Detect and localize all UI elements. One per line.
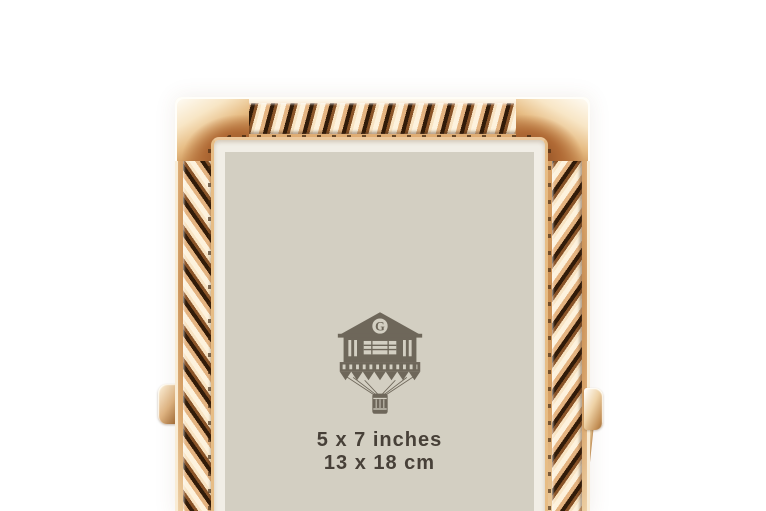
rope-texture-right [552, 109, 582, 511]
size-label-inches: 5 x 7 inches [317, 429, 442, 452]
frame-inner-lip: G [211, 137, 548, 511]
size-label-cm: 13 x 18 cm [317, 452, 442, 475]
insert-card: G [225, 152, 534, 511]
size-caption: 5 x 7 inches 13 x 18 cm [317, 429, 442, 475]
product-photo-background: G [0, 0, 766, 511]
logo-bunting [339, 372, 420, 381]
easel-hinge-right [584, 388, 603, 430]
monogram-g: G [375, 319, 385, 333]
picture-frame: G [175, 97, 590, 511]
balloon-house-logo-icon: G [334, 309, 426, 417]
